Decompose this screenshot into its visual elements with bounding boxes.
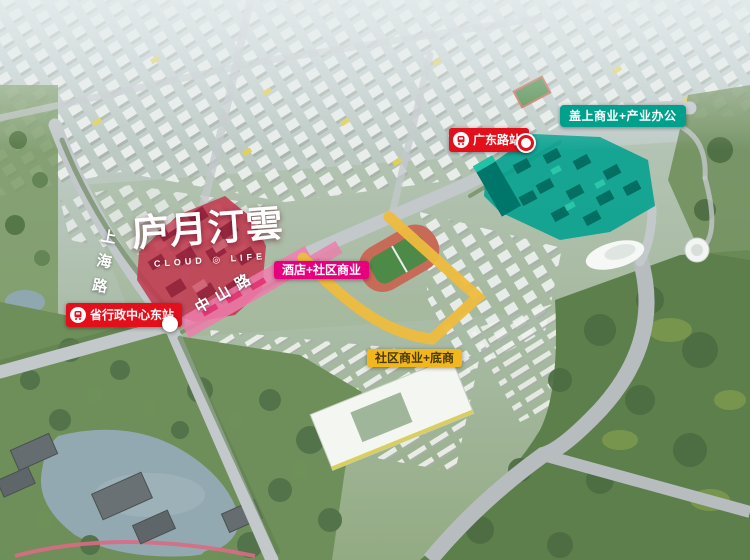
project-logo: 庐月汀雲 CLOUD ◎ LIFE (126, 193, 290, 272)
station-marker-guangdong (516, 133, 536, 153)
haze (0, 0, 750, 150)
badge-hotel-community-commerce: 酒店+社区商业 (274, 261, 369, 279)
metro-icon (453, 132, 469, 148)
aerial-masterplan-image: 庐月汀雲 CLOUD ◎ LIFE 上海路 中山路 广东路站 省行政中心东站 (0, 0, 750, 560)
badge-community-commerce-shops: 社区商业+底商 (367, 349, 462, 367)
aerial-scene (0, 0, 750, 560)
metro-icon (70, 307, 86, 323)
station-marker-admin-center (162, 316, 178, 332)
badge-podium-commerce-office: 盖上商业+产业办公 (560, 105, 686, 127)
project-name-cn: 庐月汀雲 (126, 193, 289, 258)
